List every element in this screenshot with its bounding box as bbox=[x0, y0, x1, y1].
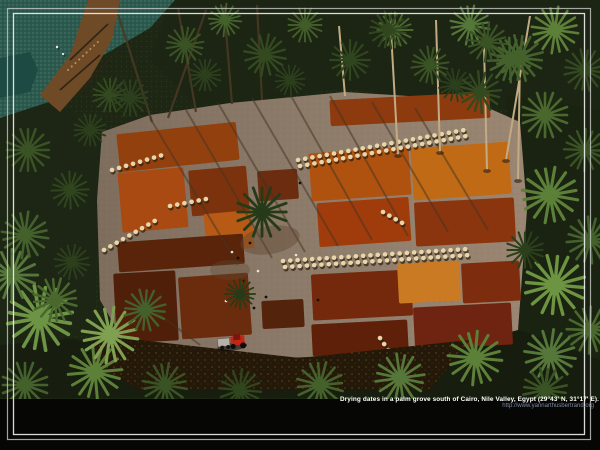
photo-caption: Drying dates in a palm grove south of Ca… bbox=[340, 396, 599, 410]
credit-url: http://www.yannarthusbertrand.org bbox=[340, 403, 599, 410]
caption-text: Drying dates in a palm grove south of Ca… bbox=[340, 396, 599, 403]
aerial-photo-illustration bbox=[0, 0, 600, 450]
photo-viewer: Drying dates in a palm grove south of Ca… bbox=[0, 0, 600, 450]
